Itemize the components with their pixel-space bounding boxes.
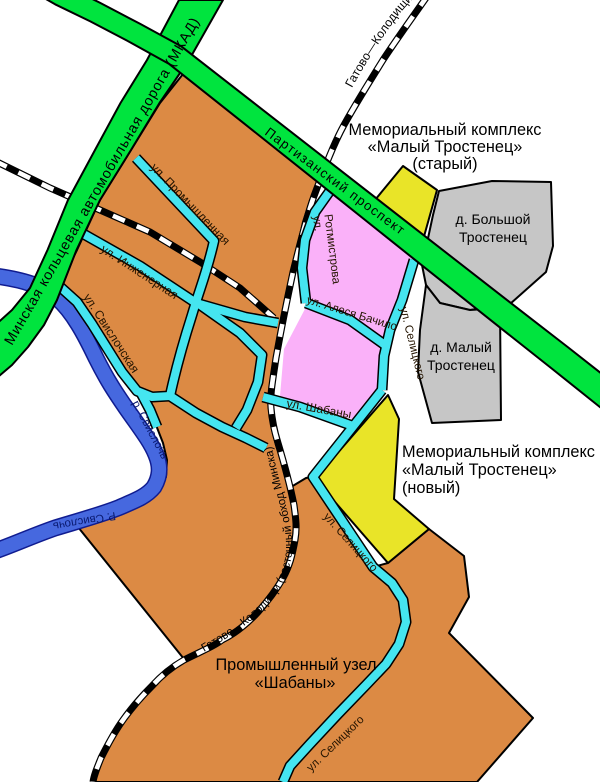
svg-text:«Малый Тростенец»: «Малый Тростенец» bbox=[368, 138, 523, 156]
svg-text:Промышленный узел: Промышленный узел bbox=[215, 656, 376, 674]
svg-text:(старый): (старый) bbox=[412, 155, 477, 173]
svg-text:Мемориальный комплекс: Мемориальный комплекс bbox=[402, 443, 595, 461]
svg-text:Тростенец: Тростенец bbox=[459, 229, 527, 245]
svg-text:«Шабаны»: «Шабаны» bbox=[255, 674, 336, 692]
svg-text:(новый): (новый) bbox=[402, 479, 460, 497]
svg-text:д. Малый: д. Малый bbox=[430, 339, 492, 355]
svg-text:«Малый Тростенец»: «Малый Тростенец» bbox=[402, 461, 557, 479]
svg-text:Мемориальный комплекс: Мемориальный комплекс bbox=[349, 121, 542, 139]
svg-text:Тростенец: Тростенец bbox=[427, 357, 495, 373]
svg-text:д. Большой: д. Большой bbox=[456, 211, 531, 227]
